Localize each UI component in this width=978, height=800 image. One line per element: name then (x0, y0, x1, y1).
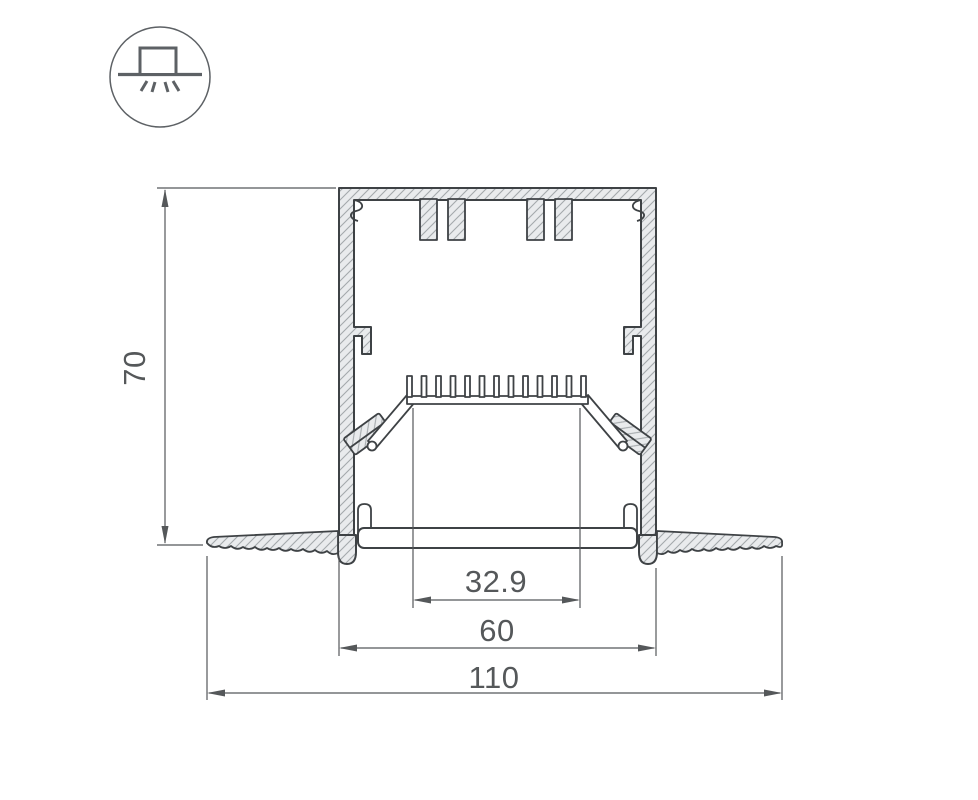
diffuser-cover (358, 528, 637, 548)
arrow-right-icon (764, 690, 782, 697)
flange-right (657, 531, 782, 554)
dim-body-width-label: 60 (479, 613, 514, 648)
profile-cross-section-drawing: 70 32.9 60 110 (0, 0, 978, 800)
profile-walls (339, 188, 656, 537)
diffuser-assembly (358, 504, 637, 548)
heatsink-fins (407, 376, 586, 397)
arrow-down-icon (162, 526, 169, 544)
screw-bosses (420, 199, 572, 240)
luminaire-box (140, 48, 176, 75)
arm-end-curl-right (619, 442, 628, 451)
recessed-mount-light-icon (110, 27, 210, 127)
corner-curls (351, 200, 644, 221)
arrow-up-icon (162, 189, 169, 207)
arrow-left-icon (413, 597, 431, 604)
screenshot-canvas: 70 32.9 60 110 (0, 0, 978, 800)
arrow-right-icon (638, 645, 656, 652)
dim-overall-width-label: 110 (469, 660, 520, 695)
arm-end-curl-left (368, 442, 377, 451)
dim-height-label: 70 (117, 350, 152, 385)
arrow-left-icon (339, 645, 357, 652)
dim-led-platform-width-label: 32.9 (465, 564, 527, 599)
dimension-led-platform-width: 32.9 (413, 408, 580, 608)
wall-foot-right (639, 535, 657, 564)
wall-foot-left (338, 535, 356, 564)
arrow-left-icon (207, 690, 225, 697)
arrow-right-icon (562, 597, 580, 604)
flange-left (207, 531, 338, 554)
icon-circle (110, 27, 210, 127)
dimension-height: 70 (117, 188, 336, 545)
heatsink-plate (368, 376, 628, 451)
